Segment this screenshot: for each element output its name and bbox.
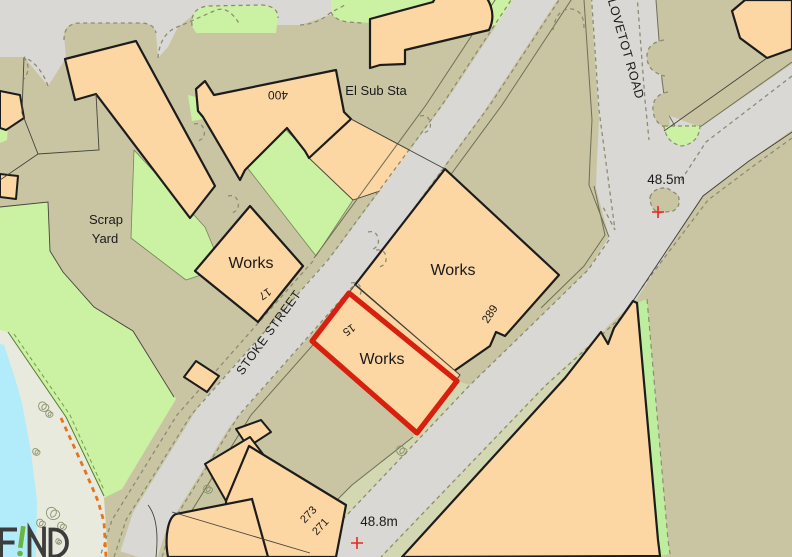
- svg-text:Scrap: Scrap: [89, 212, 123, 227]
- svg-text:Works: Works: [430, 262, 475, 279]
- svg-text:Works: Works: [228, 255, 273, 272]
- svg-text:El Sub Sta: El Sub Sta: [345, 83, 407, 98]
- svg-text:48.5m: 48.5m: [647, 172, 685, 187]
- svg-text:48.8m: 48.8m: [360, 514, 398, 529]
- svg-text:Yard: Yard: [92, 231, 119, 246]
- svg-text:400: 400: [268, 88, 288, 102]
- svg-text:Works: Works: [359, 351, 404, 368]
